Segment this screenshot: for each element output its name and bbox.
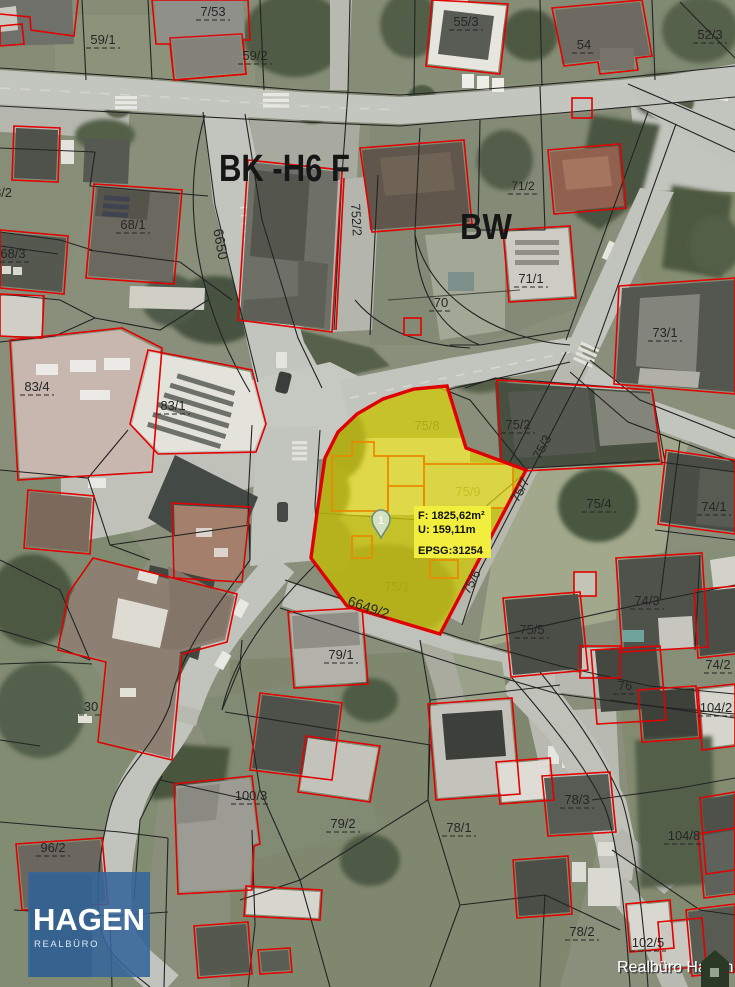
- svg-text:76: 76: [618, 678, 632, 693]
- svg-text:68/1: 68/1: [120, 217, 145, 232]
- svg-text:HAGEN: HAGEN: [33, 902, 145, 937]
- svg-text:BW: BW: [460, 206, 512, 247]
- svg-text:73/1: 73/1: [652, 325, 677, 340]
- svg-text:EPSG:31254: EPSG:31254: [418, 545, 484, 557]
- svg-text:68/3: 68/3: [0, 246, 25, 261]
- svg-text:74/1: 74/1: [701, 499, 726, 514]
- svg-text:752/2: 752/2: [348, 203, 365, 236]
- svg-text:83/4: 83/4: [24, 379, 49, 394]
- svg-text:7/53: 7/53: [200, 4, 225, 19]
- svg-text:54: 54: [577, 37, 591, 52]
- svg-text:8/2: 8/2: [0, 185, 12, 200]
- svg-text:79/1: 79/1: [328, 647, 353, 662]
- svg-text:52/3: 52/3: [697, 27, 722, 42]
- svg-text:70: 70: [434, 295, 448, 310]
- svg-text:79/2: 79/2: [330, 816, 355, 831]
- svg-text:F: 1825,62m²: F: 1825,62m²: [418, 510, 485, 522]
- svg-text:BK -H6 F: BK -H6 F: [219, 148, 350, 190]
- svg-text:104/8: 104/8: [668, 828, 701, 843]
- svg-text:104/2: 104/2: [700, 700, 733, 715]
- svg-text:74/2: 74/2: [705, 657, 730, 672]
- svg-text:102/5: 102/5: [632, 935, 665, 950]
- svg-text:83/1: 83/1: [160, 398, 185, 413]
- svg-text:75/5: 75/5: [519, 622, 544, 637]
- svg-text:71/2: 71/2: [511, 179, 535, 193]
- svg-text:78/3: 78/3: [564, 792, 589, 807]
- svg-text:75/2: 75/2: [505, 417, 530, 432]
- svg-text:96/2: 96/2: [40, 840, 65, 855]
- svg-text:78/1: 78/1: [446, 820, 471, 835]
- svg-text:U: 159,11m: U: 159,11m: [418, 524, 476, 536]
- svg-text:59/2: 59/2: [242, 48, 267, 63]
- svg-text:1: 1: [378, 515, 384, 527]
- svg-text:55/3: 55/3: [453, 14, 478, 29]
- svg-text:100/3: 100/3: [235, 788, 268, 803]
- svg-text:75/4: 75/4: [586, 496, 611, 511]
- svg-text:REALBÜRO: REALBÜRO: [34, 939, 99, 950]
- svg-text:78/2: 78/2: [569, 924, 594, 939]
- svg-text:30: 30: [84, 699, 98, 714]
- svg-text:74/3: 74/3: [634, 593, 659, 608]
- svg-text:59/1: 59/1: [90, 32, 115, 47]
- svg-text:71/1: 71/1: [518, 271, 543, 286]
